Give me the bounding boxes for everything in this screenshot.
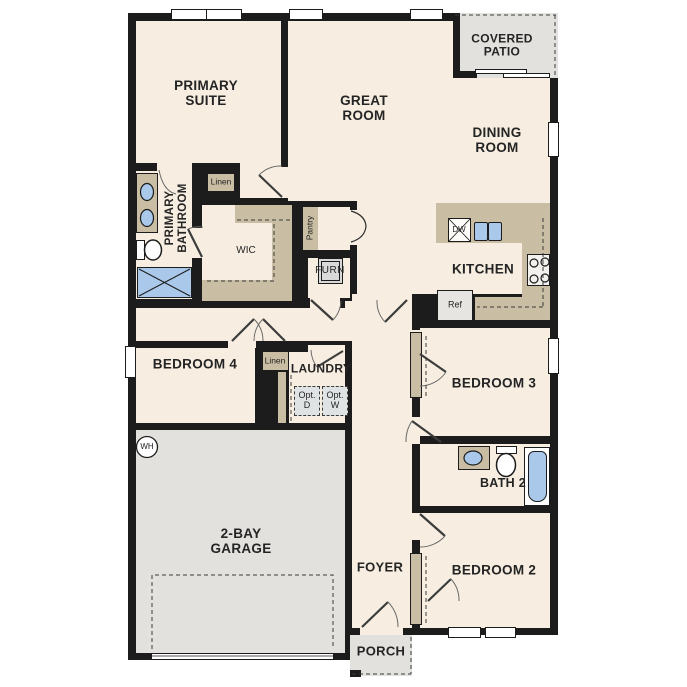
label-bedroom3: BEDROOM 3: [452, 375, 536, 390]
label-primary-suite: PRIMARY SUITE: [156, 78, 256, 108]
label-wic: WIC: [236, 246, 255, 257]
label-great-room: GREAT ROOM: [328, 93, 400, 123]
label-laundry: LAUNDRY: [291, 362, 351, 375]
label-foyer: FOYER: [357, 561, 403, 576]
floor-plan: Opt. D Opt. W: [0, 0, 687, 687]
pantry-door-wedge: [351, 211, 366, 242]
label-garage: 2-BAY GARAGE: [196, 526, 286, 556]
label-furnace: FURN: [315, 266, 345, 277]
label-linen-mid: Linen: [265, 357, 286, 366]
bath2-vanity-sink: [464, 451, 482, 465]
label-pantry: Pantry: [306, 216, 315, 241]
label-bath2: BATH 2: [479, 476, 527, 490]
label-fridge: Ref: [448, 300, 462, 309]
label-porch: PORCH: [357, 645, 405, 660]
label-primary-bathroom: PRIMARY BATHROOM: [164, 171, 190, 265]
label-bedroom4: BEDROOM 4: [153, 356, 237, 371]
door-leaves: [188, 175, 451, 627]
stove-burners-icon: [530, 258, 549, 283]
label-water-heater: WH: [140, 443, 153, 451]
label-kitchen: KITCHEN: [452, 261, 514, 276]
label-covered-patio: COVERED PATIO: [462, 33, 542, 60]
primary-vanity-sinks: [141, 184, 154, 227]
primary-toilet-bowl: [145, 240, 162, 260]
label-linen-top: Linen: [211, 178, 232, 187]
bath2-toilet-bowl: [497, 454, 516, 477]
label-bedroom2: BEDROOM 2: [452, 562, 536, 577]
label-dishwasher: DW: [452, 226, 465, 234]
label-dining-room: DINING ROOM: [457, 125, 537, 155]
shower-x-icon: [139, 269, 190, 296]
